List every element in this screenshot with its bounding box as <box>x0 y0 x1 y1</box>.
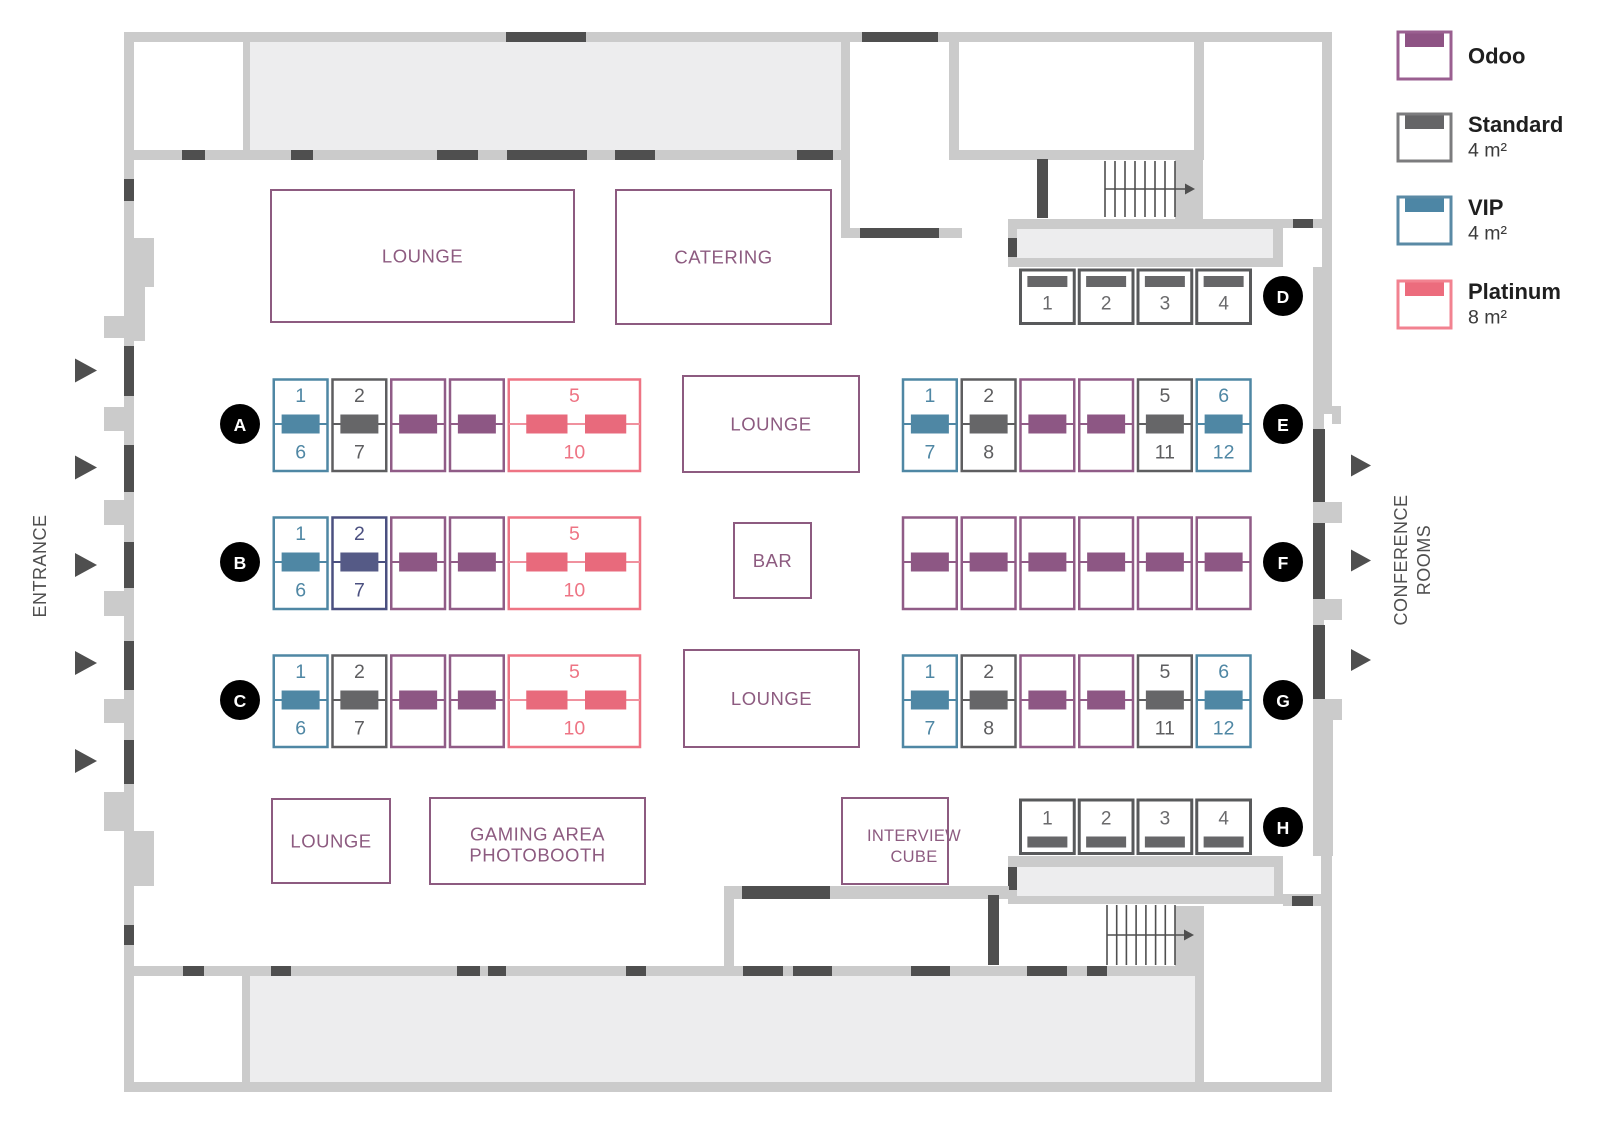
svg-text:6: 6 <box>295 718 306 740</box>
svg-text:C: C <box>234 691 247 711</box>
svg-text:CUBE: CUBE <box>890 848 937 866</box>
svg-text:8 m²: 8 m² <box>1468 307 1508 329</box>
svg-text:10: 10 <box>564 442 586 464</box>
svg-text:1: 1 <box>1042 294 1053 315</box>
svg-text:VIP: VIP <box>1468 195 1503 220</box>
svg-text:12: 12 <box>1213 442 1235 464</box>
svg-text:GAMING AREA: GAMING AREA <box>470 824 605 845</box>
svg-text:ROOMS: ROOMS <box>1414 525 1434 596</box>
svg-text:11: 11 <box>1155 718 1175 740</box>
svg-text:LOUNGE: LOUNGE <box>290 831 371 852</box>
svg-text:F: F <box>1278 553 1289 573</box>
svg-text:6: 6 <box>1218 385 1229 407</box>
svg-text:5: 5 <box>569 523 580 545</box>
svg-text:PHOTOBOOTH: PHOTOBOOTH <box>469 845 605 866</box>
svg-text:2: 2 <box>1101 809 1112 830</box>
svg-text:D: D <box>1277 287 1290 307</box>
svg-text:Odoo: Odoo <box>1468 44 1525 69</box>
svg-text:1: 1 <box>295 661 306 683</box>
svg-text:1: 1 <box>295 385 306 407</box>
svg-text:2: 2 <box>1101 294 1112 315</box>
svg-text:5: 5 <box>569 385 580 407</box>
svg-text:2: 2 <box>354 661 365 683</box>
svg-text:7: 7 <box>354 442 365 464</box>
svg-text:E: E <box>1277 415 1289 435</box>
svg-text:12: 12 <box>1213 718 1235 740</box>
svg-text:1: 1 <box>1042 809 1053 830</box>
svg-text:4 m²: 4 m² <box>1468 223 1508 245</box>
svg-text:10: 10 <box>564 718 586 740</box>
svg-text:7: 7 <box>354 718 365 740</box>
svg-text:G: G <box>1276 691 1290 711</box>
svg-text:4: 4 <box>1218 809 1229 830</box>
svg-text:11: 11 <box>1155 442 1175 464</box>
svg-text:4 m²: 4 m² <box>1468 140 1508 162</box>
svg-text:7: 7 <box>924 442 935 464</box>
svg-text:2: 2 <box>983 385 994 407</box>
svg-text:6: 6 <box>1218 661 1229 683</box>
svg-text:LOUNGE: LOUNGE <box>731 688 812 709</box>
svg-text:8: 8 <box>983 718 994 740</box>
svg-text:7: 7 <box>924 718 935 740</box>
svg-text:Standard: Standard <box>1468 112 1563 137</box>
svg-text:1: 1 <box>924 385 935 407</box>
svg-text:LOUNGE: LOUNGE <box>730 414 811 435</box>
svg-text:6: 6 <box>295 442 306 464</box>
svg-text:2: 2 <box>354 523 365 545</box>
svg-text:Platinum: Platinum <box>1468 279 1561 304</box>
svg-text:BAR: BAR <box>753 550 793 571</box>
svg-text:3: 3 <box>1160 294 1171 315</box>
svg-text:7: 7 <box>354 580 365 602</box>
svg-text:5: 5 <box>1159 385 1170 407</box>
svg-text:1: 1 <box>924 661 935 683</box>
svg-text:5: 5 <box>569 661 580 683</box>
svg-text:CATERING: CATERING <box>674 247 772 268</box>
svg-text:B: B <box>234 553 247 573</box>
svg-text:1: 1 <box>295 523 306 545</box>
svg-text:A: A <box>234 415 247 435</box>
svg-text:2: 2 <box>354 385 365 407</box>
svg-text:3: 3 <box>1160 809 1171 830</box>
svg-text:H: H <box>1277 818 1290 838</box>
svg-text:INTERVIEW: INTERVIEW <box>867 827 961 845</box>
svg-text:2: 2 <box>983 661 994 683</box>
svg-text:5: 5 <box>1159 661 1170 683</box>
svg-text:10: 10 <box>564 580 586 602</box>
svg-text:8: 8 <box>983 442 994 464</box>
svg-text:6: 6 <box>295 580 306 602</box>
svg-text:ENTRANCE: ENTRANCE <box>30 514 50 617</box>
svg-text:CONFERENCE: CONFERENCE <box>1391 494 1411 625</box>
svg-text:LOUNGE: LOUNGE <box>382 246 463 267</box>
svg-text:4: 4 <box>1218 294 1229 315</box>
